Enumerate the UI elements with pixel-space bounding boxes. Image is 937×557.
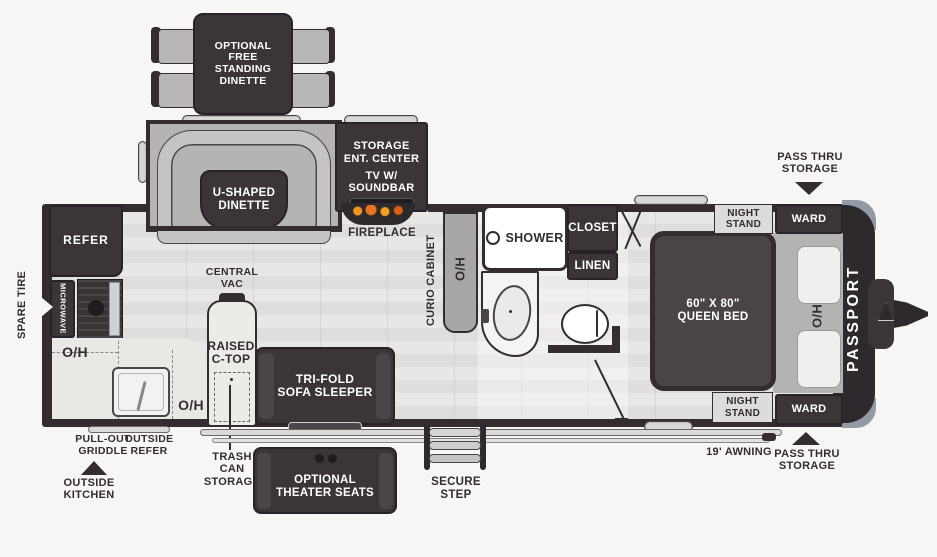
step-tread	[429, 441, 481, 450]
cooktop	[77, 279, 123, 339]
central-vac-label: CENTRAL VAC	[195, 267, 269, 291]
bath-sink	[489, 283, 534, 344]
bath-faucet	[481, 309, 489, 323]
fireplace	[341, 203, 415, 225]
toilet	[561, 304, 609, 344]
awning-end-cap	[762, 433, 776, 441]
curio-top-trim	[444, 206, 477, 214]
pass-thru-bottom-label: PASS THRU STORAGE	[765, 448, 849, 473]
step-tread	[429, 454, 481, 463]
free-standing-dinette-label: OPTIONAL FREE STANDING DINETTE	[215, 41, 272, 88]
microwave: MICROWAVE	[50, 280, 75, 338]
step-tread	[429, 428, 481, 437]
cooktop-knob-panel	[109, 282, 120, 336]
pass-thru-top-arrow-icon	[795, 182, 823, 195]
bath-vanity	[481, 271, 539, 357]
ward-top: WARD	[775, 204, 843, 234]
awning-rail	[200, 429, 782, 436]
ent-center: STORAGE ENT. CENTER TV W/ SOUNDBAR	[335, 122, 428, 212]
bath-wall-bottom	[548, 345, 620, 353]
storage-label: STORAGE	[353, 140, 409, 152]
theater-armrest-right	[379, 453, 393, 509]
trash-dot	[230, 378, 233, 381]
bath-wall-stub	[612, 326, 620, 353]
outside-kitchen-label: OUTSIDE KITCHEN	[56, 477, 122, 502]
refrigerator: REFER	[49, 205, 123, 277]
raised-ctop: RAISED C-TOP	[207, 300, 257, 427]
oh-label-curio: O/H	[453, 247, 469, 291]
night-stand-top-label: NIGHT STAND	[726, 208, 761, 230]
sofa-label: TRI-FOLD SOFA SLEEPER	[277, 373, 372, 400]
closet: CLOSET	[567, 204, 618, 252]
night-stand-bottom: NIGHT STAND	[712, 392, 773, 423]
free-standing-dinette-table: OPTIONAL FREE STANDING DINETTE	[193, 13, 293, 115]
shower: SHOWER	[482, 205, 568, 271]
night-stand-bottom-label: NIGHT STAND	[725, 396, 760, 418]
linen-label: LINEN	[575, 260, 611, 273]
pass-thru-top-label: PASS THRU STORAGE	[768, 151, 852, 176]
oh-label-kitchen-right: O/H	[174, 398, 208, 414]
ward-bottom: WARD	[775, 394, 843, 425]
queen-bed-label: 60" X 80" QUEEN BED	[655, 298, 771, 324]
cupholder-icon	[328, 454, 337, 463]
outside-refer-label: OUTSIDE REFER	[118, 434, 180, 458]
spare-tire-label: SPARE TIRE	[14, 258, 30, 352]
counter-divider	[172, 350, 173, 419]
tri-fold-sofa: TRI-FOLD SOFA SLEEPER	[255, 347, 395, 425]
theater-seats-label: OPTIONAL THEATER SEATS	[276, 474, 374, 500]
microwave-label: MICROWAVE	[58, 283, 66, 334]
raised-ctop-label: RAISED C-TOP	[203, 340, 259, 367]
oh-label-bed: O/H	[804, 296, 832, 336]
floorplan-diagram: PASSPORT OPTIONAL FREE STANDING DINETTE …	[0, 0, 937, 557]
sofa-armrest-right	[376, 353, 391, 419]
u-dinette-table: U-SHAPED DINETTE	[200, 170, 288, 230]
griddle-bar	[88, 426, 170, 433]
closet-label: CLOSET	[568, 222, 616, 235]
bath-sink-drain	[509, 310, 512, 313]
secure-step	[424, 424, 486, 472]
linen: LINEN	[567, 252, 618, 280]
pass-thru-bottom-arrow-icon	[792, 432, 820, 445]
refer-label: REFER	[63, 234, 109, 247]
outside-kitchen-arrow-icon	[81, 461, 107, 475]
fireplace-flames	[349, 205, 407, 217]
secure-step-label: SECURE STEP	[414, 476, 498, 502]
theater-seats: OPTIONAL THEATER SEATS	[253, 447, 397, 514]
spare-tire-arrow-icon	[41, 297, 53, 317]
night-stand-top: NIGHT STAND	[714, 204, 773, 234]
ward-top-label: WARD	[792, 213, 827, 225]
curio-cabinet-label: CURIO CABINET	[423, 222, 439, 338]
fireplace-label: FIREPLACE	[348, 227, 416, 240]
window-dinette-side	[139, 142, 146, 182]
cupholder-icon	[315, 454, 324, 463]
kitchen-sink	[112, 367, 170, 417]
ward-bottom-label: WARD	[792, 403, 827, 415]
tv-soundbar-label: TV W/ SOUNDBAR	[349, 170, 415, 195]
pillow-bottom	[797, 330, 841, 388]
cooktop-burner	[88, 300, 104, 316]
sofa-armrest-left	[259, 353, 274, 419]
awning-arm	[212, 438, 770, 443]
theater-armrest-left	[257, 453, 271, 509]
toilet-seat-line	[596, 310, 598, 337]
window-bedroom-top	[635, 196, 707, 204]
ent-center-label: ENT. CENTER	[344, 153, 419, 165]
shower-head-icon	[486, 231, 500, 245]
curio-cabinet: O/H	[443, 205, 478, 333]
queen-bed: 60" X 80" QUEEN BED	[650, 231, 776, 391]
shower-label: SHOWER	[505, 231, 563, 245]
brand-passport: PASSPORT	[842, 248, 866, 390]
bath-door-jamb	[615, 418, 628, 427]
u-dinette-label: U-SHAPED DINETTE	[213, 187, 275, 213]
slide-bottom-trim	[146, 226, 342, 231]
oh-label-kitchen-left: O/H	[58, 345, 92, 361]
